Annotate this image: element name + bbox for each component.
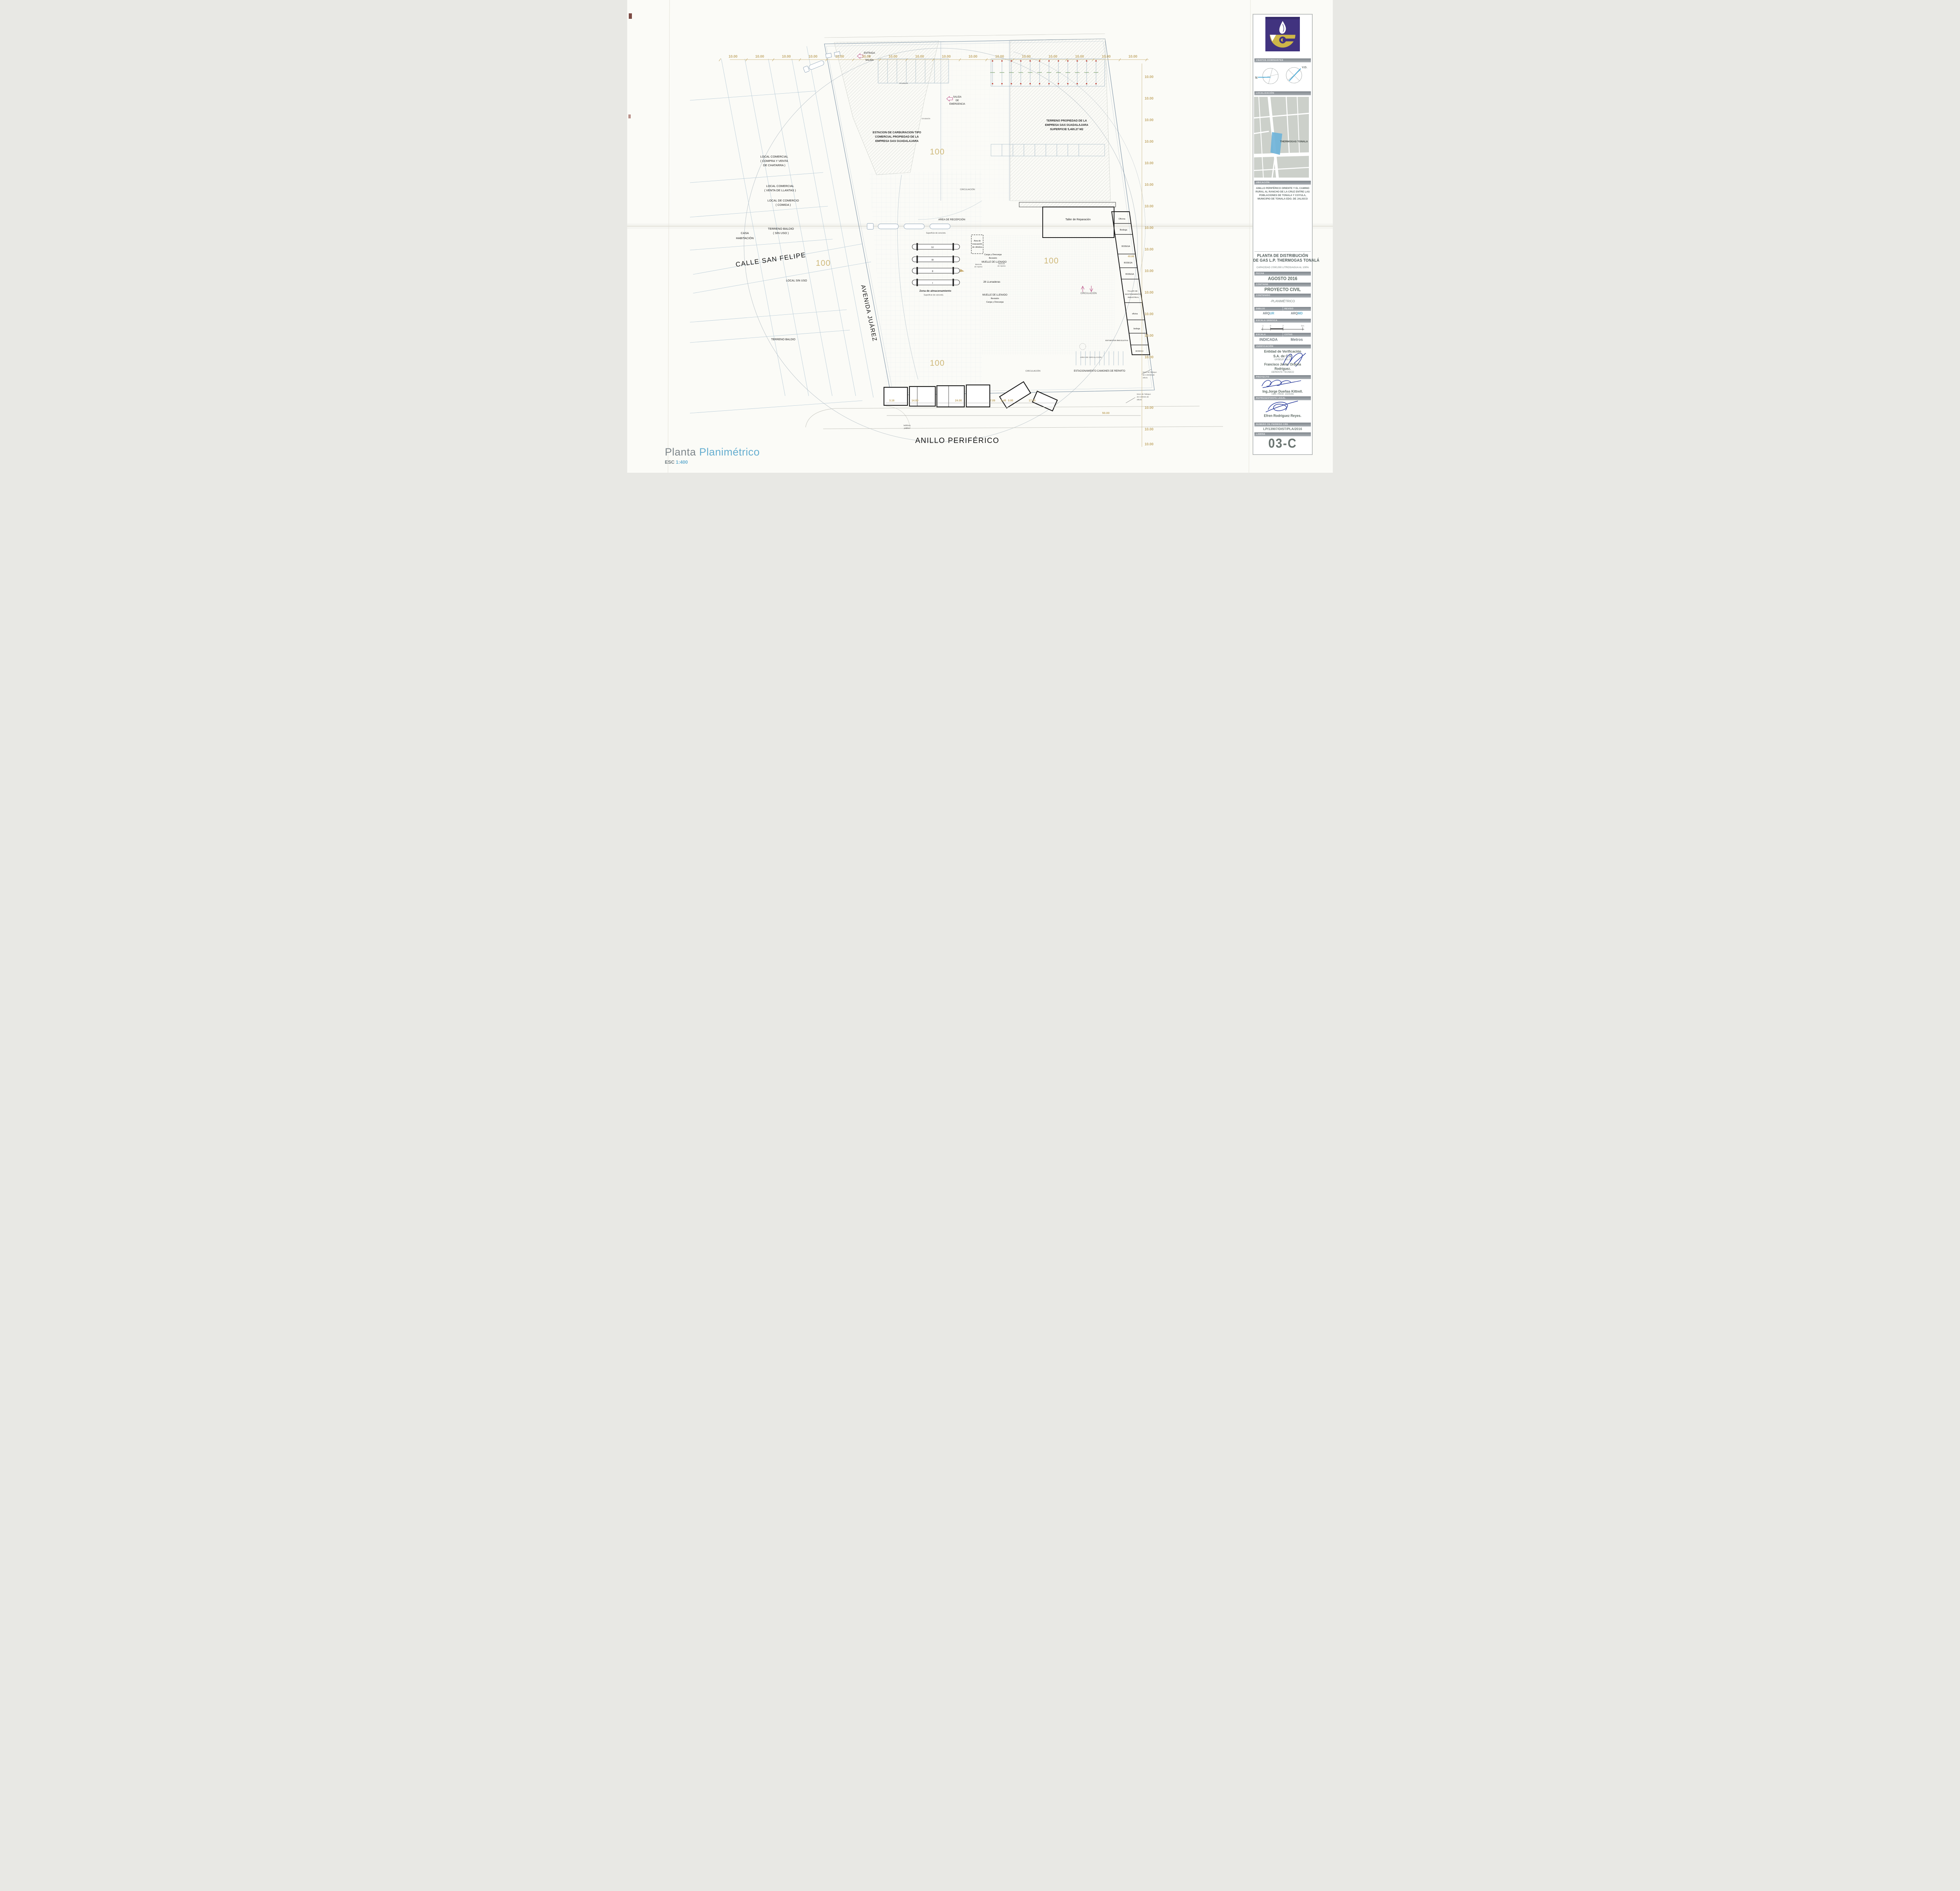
site-label: SALIDA (953, 96, 961, 98)
dim-label: 2.45 (1001, 399, 1006, 402)
site-label: Circulación (899, 82, 908, 84)
bar-escala-grafica: ESCALA GRÁFICA (1254, 319, 1311, 323)
south-road (823, 406, 1223, 429)
dim-label: 10.00 (1075, 54, 1084, 58)
tank-label: III (931, 259, 934, 261)
site-label: Muro de Tabique (1137, 393, 1151, 396)
tank-label: I (932, 282, 933, 285)
cotas-value: Metros (1283, 337, 1311, 342)
site-label: SUPERFICIE 5,465.27 M2 (1050, 127, 1083, 131)
parcel-label: LOCAL DE COMERCIO (768, 199, 799, 202)
dim-label: 10.00 (809, 54, 818, 58)
marker-100: 100 (816, 259, 831, 268)
dim-label: 17.35 (1029, 399, 1036, 402)
dim-label: 10.00 (1145, 204, 1154, 208)
dim-label: 10.00 (1145, 334, 1154, 338)
cotas-label: COTAS (1283, 333, 1311, 337)
footer-title-gray: Planta (665, 446, 696, 458)
room-label: oficina (1132, 313, 1138, 315)
tank-label: IV (931, 246, 934, 249)
dim-label: 3.16 (889, 399, 895, 402)
footer-esc-value: 1:400 (676, 459, 688, 465)
dim-label: 10.00 (969, 54, 978, 58)
parcel-label: ( COMPRA Y VENTA (760, 159, 788, 163)
room-label: BODEGA (1125, 273, 1134, 276)
dim-label: 10.00 (1145, 312, 1154, 316)
site-label: TERRENO PROPIEDAD DE LA (1046, 119, 1087, 122)
bar-verificacion: VERIFICACIÓN (1254, 345, 1311, 348)
title-block: VIENTOS DOMINANTES N V.D. LOCALIZACIÓN (1253, 14, 1312, 455)
bar-contiene: CONTIENE (1254, 283, 1311, 287)
dim-label: 0.95 (1008, 399, 1013, 402)
dim-label: 10.00 (1145, 140, 1154, 143)
proyecto-ced: CED. PROF. 1024155 (1253, 393, 1312, 396)
site-label: Area de (974, 240, 981, 242)
dim-label: 10.00 (915, 54, 924, 58)
parcel-label: DE CHATARRA ) (763, 163, 786, 167)
footer-scale: ESC 1:400 (665, 459, 760, 465)
site-label: altura. (1137, 399, 1142, 401)
dim-label: 10.00 (835, 54, 844, 58)
dim-label: 10.00 (889, 54, 898, 58)
dim-label: 10.00 (1102, 54, 1111, 58)
room-label: BODEGA (1122, 245, 1130, 248)
site-label: de 3.00mts de (1137, 396, 1149, 398)
map-site-label: THERMOGAS TONALA (1280, 140, 1308, 143)
site-label: Carga y Descarga (986, 301, 1004, 303)
location-map: THERMOGAS TONALA (1253, 96, 1312, 179)
site-label: de repeso (998, 265, 1006, 267)
bar-localizacion: LOCALIZACIÓN (1254, 91, 1311, 95)
bar-fecha: FECHA (1254, 272, 1311, 276)
graphic-scale: -1 0 2 5m (1253, 323, 1312, 332)
capacity-note: CAPACIDAD 1'000,000 LITROS/AGUA AL 100% (1253, 266, 1312, 269)
bar-vientos: VIENTOS DOMINANTES (1254, 58, 1311, 62)
bar-lamina: LAMINA (1254, 432, 1311, 436)
scale-tick: -1 (1262, 325, 1264, 327)
site-label: COMERCIAL PROPIEDAD DE LA (875, 135, 919, 138)
parcel-labels: LOCAL COMERCIAL ( COMPRA Y VENTA DE CHAT… (736, 155, 807, 341)
vd-label: V.D. (1302, 65, 1307, 69)
site-label: de 3.00mts de (1143, 374, 1155, 376)
south-buildings (884, 382, 1057, 411)
dim-label: 10.00 (1145, 161, 1154, 165)
site-label: de repeso (975, 266, 983, 268)
scale-tick: 5m (1301, 325, 1304, 327)
site-label: Carga y Descarga (984, 254, 1002, 256)
room-label: TALLER DE (1127, 290, 1138, 292)
site-label: EMERGENCIA (949, 103, 965, 105)
dim-label: 10.00 (1145, 247, 1154, 251)
dim-label: 10.00 (1145, 269, 1154, 273)
sheet: CALLE SAN FELIPE AVENIDA JUÁREZ ANILLO P… (627, 0, 1333, 473)
site-label: Revisión (991, 298, 999, 300)
parcel-label: LOCAL COMERCIAL (766, 184, 794, 188)
north-label: N (1255, 76, 1258, 80)
site-plan-drawing: CALLE SAN FELIPE AVENIDA JUÁREZ ANILLO P… (627, 0, 1333, 473)
dim-label: 7.09 (990, 399, 995, 402)
dim-label: 10.00 (1145, 442, 1154, 446)
gerente-name-line2: Rodríguez. (1253, 367, 1312, 370)
site-label: Superficie de concreto. (924, 294, 944, 296)
gerente-name-line1: Francisco Javier Orduña (1253, 362, 1312, 366)
site-label: Taller de Reparación (1065, 218, 1091, 221)
dim-label: 10.00 (1145, 75, 1154, 79)
dim-label: 50.00 (1102, 411, 1110, 415)
dim-label: 10.00 (1145, 118, 1154, 122)
dim-label: 24.00 (955, 399, 962, 402)
scale-units-row: INDICADA Metros (1254, 337, 1311, 342)
site-label: EMPRESA GAS GUADALAJARA (1045, 123, 1088, 127)
marker-100: 100 (930, 359, 945, 368)
parcel-label: CASA (741, 231, 749, 235)
dim-label: 10.00 (1145, 96, 1154, 100)
site-label: público (904, 427, 910, 430)
drawing-footer-title: Planta Planimétrico ESC 1:400 (665, 446, 760, 465)
footer-esc-label: ESC (665, 459, 675, 465)
room-label: MANTENIMIENTO (1125, 293, 1141, 296)
contiene-value: PROYECTO CIVIL (1253, 287, 1312, 292)
site-address-line: POBLACIONES DE TONALA Y COYULA, (1254, 194, 1311, 198)
dim-label: 10.00 (1145, 226, 1154, 230)
dibujo-value: ARQUR (1254, 312, 1283, 315)
lamina-value: 03-C (1253, 436, 1312, 451)
tank-label: II (932, 270, 933, 273)
site-label: altura. (1143, 377, 1148, 379)
room-label: Bodega (1120, 229, 1128, 231)
site-label: CIRCULACIÓN (960, 188, 975, 191)
proyecto-signature (1260, 378, 1303, 389)
site-label: evacuación (972, 243, 982, 245)
marker-100: 100 (1044, 256, 1059, 265)
parcel-label: ( COMIDA ) (776, 203, 791, 207)
bar-escala-cotas: ESCALA COTAS (1254, 333, 1311, 337)
room-label: Oficina (1118, 218, 1125, 220)
room-label: EST.MOTOS /BICICLETAS (1105, 339, 1128, 342)
site-label: Circulación (922, 118, 931, 120)
room-label: BODEGA (1124, 262, 1132, 264)
dim-label: 10.00 (1049, 54, 1058, 58)
company-logo (1253, 17, 1312, 56)
bar-permiso: NUMERO DE PERMISO CRE (1254, 423, 1311, 426)
dim-label: 10.00 (1022, 54, 1031, 58)
thermogas-logo-icon (1265, 17, 1300, 51)
parcel-label: LOCAL COMERCIAL (760, 155, 788, 158)
sheet-title-line1: PLANTA DE DISTRIBUCIÓN (1253, 253, 1312, 258)
parcel-label: ( SIN USO ) (773, 231, 789, 235)
site-label: 28 LLenaderas (983, 281, 1000, 283)
site-address-line: RURAL AL RANCHO DE LA CRUZ ENTRE LAS (1254, 191, 1311, 194)
dim-label: 10.00 (1145, 406, 1154, 410)
site-label: Superficie de concreto. (926, 232, 946, 234)
dim-label: 10.00 (755, 54, 764, 58)
site-label: CIRCULACIÓN (1025, 370, 1040, 372)
fecha-value: AGOSTO 2016 (1253, 276, 1312, 281)
dim-label: 14.80 (911, 399, 918, 402)
site-label: Bascula (998, 263, 1005, 265)
contenido-value: -PLANIMÉTRICO (1253, 299, 1312, 303)
sheet-title-line2: DE GAS L.P. THERMOGAS TONALÁ (1253, 258, 1312, 263)
bar-ubicacion: UBICACIÓN (1254, 181, 1311, 185)
dim-label: 10.00 (862, 54, 871, 58)
footer-title: Planta Planimétrico (665, 446, 760, 458)
dim-label: 10.00 (729, 54, 738, 58)
permiso-value: LP/13907/DIST/PLA/2016 (1253, 427, 1312, 431)
street-anillo-periferico: ANILLO PERIFÉRICO (915, 437, 1000, 445)
parcel-label: ( VENTA DE LLANTAS ) (764, 189, 796, 192)
dim-label: 10.00 (782, 54, 791, 58)
escala-label: ESCALA (1254, 333, 1283, 337)
site-label: AREA DE RECEPCIÓN (938, 218, 965, 221)
wind-compasses: N V.D. (1253, 63, 1312, 89)
site-label: DE (956, 100, 959, 102)
dim-label: 10.00 (995, 54, 1004, 58)
gerente-role: GERENTE TECNICO (1253, 371, 1312, 374)
reviso-label: REVISO (1283, 307, 1311, 311)
dibujo-label: DIBUJO (1254, 307, 1283, 311)
site-label: de cilindros (972, 246, 982, 249)
reviso-value: ARQMD (1283, 312, 1311, 315)
site-label: CIRCULACIÓN (1080, 292, 1096, 295)
site-label: SALIDA (865, 59, 873, 62)
proyecto-name: Ing.Jorge Dueñas Kittrell. (1253, 389, 1312, 393)
site-label: ESTACION DE CARBURACION TIPO (873, 131, 921, 134)
room-label: bodega (1134, 328, 1140, 330)
parcel-label: HABITACIÓN (736, 236, 753, 240)
scale-tick: 0 (1270, 325, 1271, 327)
site-label: EMPRESA GAS GUADALAJARA (875, 139, 918, 143)
room-label: INDUSTRIAL (1128, 296, 1139, 299)
site-label: teléfono (904, 425, 911, 427)
site-label: Revisión (989, 257, 997, 260)
site-label: AREA DE CIRCULACIÓN (1080, 356, 1102, 359)
dim-label: 10.00 (1145, 290, 1154, 294)
scale-tick: 2 (1282, 325, 1283, 327)
dim-label: 10.00 (942, 54, 951, 58)
bar-dibujo-reviso: DIBUJO REVISO (1254, 307, 1311, 311)
site-address-line: ANILLO PERIFÉRICO ORIENTE Y EL CAMINO (1254, 187, 1311, 191)
dim-label: 10.00 (1145, 355, 1154, 359)
site-label: ESTACIONAMIENTO CAMIONES DE REPARTO (1074, 370, 1125, 372)
room-label: BODEGA (1136, 350, 1144, 352)
bar-contenido: CONTENIDO (1254, 294, 1311, 298)
site-label: Zona de almacenamiento (919, 290, 951, 292)
site-label: Bascula (975, 263, 982, 265)
site-label: MUELLE DE LLENADO (982, 294, 1007, 296)
site-address-line: MUNICIPIO DE TONALA EDO. DE JALISCO (1254, 198, 1311, 201)
parcel-label: TERRENO BALDIO (771, 338, 795, 341)
street-calle-san-felipe: CALLE SAN FELIPE (735, 251, 806, 269)
site-label: Muro de Tabique (1143, 371, 1157, 374)
escala-value: INDICADA (1254, 337, 1283, 342)
dim-label: 10.00 (1129, 54, 1138, 58)
drafter-row: ARQUR ARQMD (1254, 312, 1311, 315)
rep-legal-name: Efren Rodríguez Reyes. (1253, 413, 1312, 417)
parcel-label: TERRENO BALDIO (768, 227, 794, 230)
dim-label: 10.00 (1145, 427, 1154, 431)
marker-100: 100 (930, 147, 945, 156)
parcel-label: LOCAL SIN USO (786, 279, 807, 282)
dim-label: 49.86 (1128, 255, 1134, 258)
dim-label: 10.00 (1145, 183, 1154, 187)
rep-legal-signature (1264, 399, 1299, 414)
footer-title-blue: Planimétrico (699, 446, 760, 458)
